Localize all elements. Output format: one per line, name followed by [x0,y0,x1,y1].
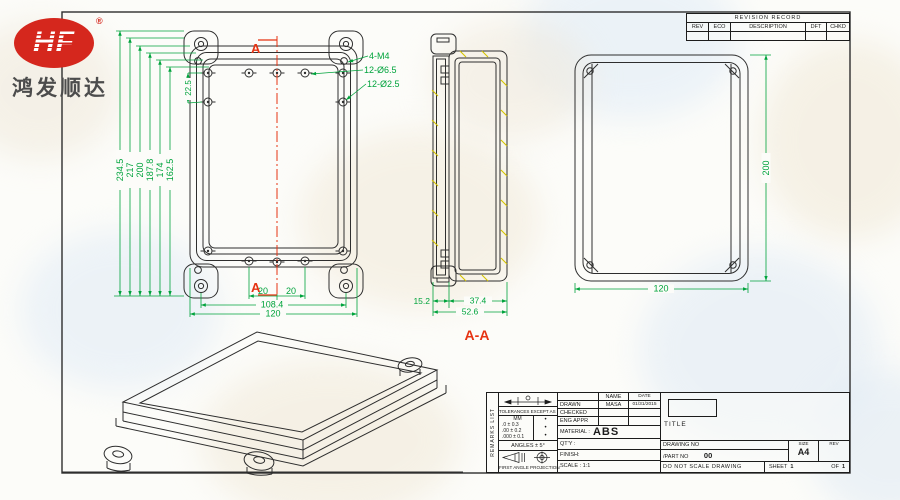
tolerance-block: TOLERANCES EXCEPT AS NOTED MM .0 ± 0.3 .… [499,393,558,472]
approval-block: NAME DATE DRAWN MASA 01/31/2015 CHECKED … [558,393,661,472]
size-value: A4 [789,446,818,458]
dim-162-5: 162.5 [165,159,175,182]
drawing-sheet: 234.5 217 200 187.8 174 162.5 22.5 20 20… [0,0,900,500]
no-scale-note: DO NOT SCALE DRAWING [661,462,765,472]
tolerance-table: MM .0 ± 0.3 .00 ± 0.2 .000 ± 0.1 • • • [499,416,557,441]
revision-col-description: DESCRIPTION [731,23,806,31]
registered-trademark-icon: ® [96,16,103,26]
section-view-label: A-A [465,327,490,343]
callout-12-d6-5: 12-Ø6.5 [364,65,397,75]
of-label: OF [831,464,839,470]
callout-4-m4: 4-M4 [369,51,390,61]
section-letter-top: A [251,41,261,56]
dimension-symbol-cell [499,393,557,407]
revision-empty-row [687,32,849,40]
sheet-total: 1 [842,464,845,470]
logo-mark: HF [14,18,94,68]
first-angle-projection-icon [499,451,557,464]
front-view [184,31,363,298]
scale-row: SCALE : 1:1 [558,461,660,472]
revision-col-chkd: CHKD [827,23,849,31]
revision-col-dft: DFT [806,23,827,31]
iso-view [62,332,463,475]
name-header: NAME [599,393,629,400]
dim-22-5: 22.5 [184,80,193,96]
tolerance-row: .000 ± 0.1 [502,434,533,440]
sheet-label: SHEET [769,464,787,470]
revision-table: REVISION RECORD REV ECO DESCRIPTION DFT … [686,13,850,41]
tolerance-bullet: • [544,433,546,439]
dim-120-front: 120 [265,309,280,319]
rev-cell: REV [819,441,849,461]
remarks-strip: REMARKS LIST [487,393,499,472]
revision-col-eco: ECO [709,23,731,31]
revision-header-row: REV ECO DESCRIPTION DFT CHKD [687,23,849,32]
title-id-block: TITLE DRAWING NO /PART NO 00 SIZE A4 REV [661,393,849,472]
dim-187-8: 187.8 [145,159,155,182]
finish-row: FINISH: [558,450,660,461]
dim-217: 217 [125,162,135,177]
sheet-cell: SHEET 1 OF 1 [765,462,849,472]
company-logo: HF ® 鸿发顺达 [10,14,130,100]
size-cell: SIZE A4 [789,441,819,461]
logo-placeholder-box [668,399,717,417]
date-header: DATE [629,393,660,400]
section-letter-bottom: A [251,280,261,295]
tolerance-bullet: • [544,425,546,431]
back-view-dimensions [575,55,771,293]
projection-label: FIRST ANGLE PROJECTION [499,464,557,472]
part-no-label: /PART NO [663,454,688,460]
drawn-row: DRAWN MASA 01/31/2015 [558,401,660,409]
dim-174: 174 [155,162,165,177]
approval-header-row: NAME DATE [558,393,660,401]
drawn-name: MASA [599,401,629,408]
logo-brand-text: HF [33,27,75,59]
company-name: 鸿发顺达 [12,72,108,102]
dim-200-back: 200 [761,160,771,175]
title-label: TITLE [664,421,687,428]
footer-area: DO NOT SCALE DRAWING SHEET 1 OF 1 [661,462,849,472]
tolerance-bullet: • [544,417,546,423]
checked-label: CHECKED [558,409,599,416]
rev-label: REV [819,441,849,447]
material-value: ABS [593,426,619,438]
dimension-symbol-icon [501,394,555,406]
callout-12-d2-5: 12-Ø2.5 [367,79,400,89]
drawn-label: DRAWN [558,401,599,408]
eng-appr-label: ENG APPR [558,417,599,425]
part-no-value: 00 [704,451,712,460]
dim-20-right: 20 [286,286,296,296]
sheet-number: 1 [790,464,793,470]
dim-120-back: 120 [653,284,668,294]
revision-table-title: REVISION RECORD [687,14,849,23]
title-block: REMARKS LIST TOLERANCES EXCEPT AS NOTED … [486,392,850,473]
dim-52-6: 52.6 [462,307,479,317]
projection-symbol-cell [499,451,557,464]
qty-row: QT'Y : [558,439,660,450]
material-label: MATERIAL : [560,429,590,435]
dim-15-2: 15.2 [413,296,430,306]
angles-tolerance: ANGLES ± 5° [499,441,557,451]
section-view [431,34,507,286]
back-view [575,55,748,281]
remarks-label: REMARKS LIST [490,408,496,457]
dim-200-left: 200 [135,162,145,177]
revision-col-rev: REV [687,23,709,31]
drawing-no-label: DRAWING NO [661,441,788,450]
eng-appr-row: ENG APPR [558,417,660,426]
checked-row: CHECKED [558,409,660,417]
title-area: TITLE [661,393,849,441]
tolerances-title: TOLERANCES EXCEPT AS NOTED [499,407,557,416]
dim-37-4: 37.4 [470,296,487,306]
drawn-date: 01/31/2015 [629,401,660,408]
dim-234-5: 234.5 [115,159,125,182]
material-row: MATERIAL : ABS [558,426,660,439]
number-area: DRAWING NO /PART NO 00 SIZE A4 REV [661,441,849,462]
